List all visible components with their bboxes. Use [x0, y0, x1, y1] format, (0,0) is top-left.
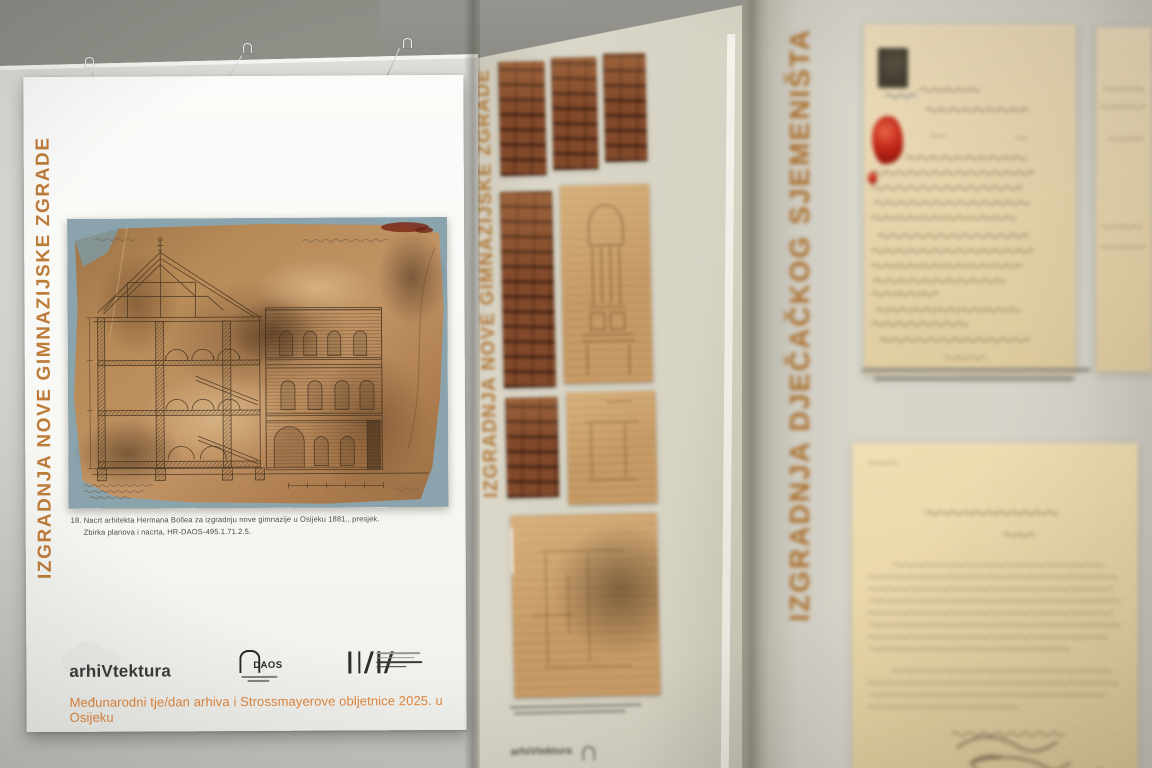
signature-flourish [936, 737, 1100, 768]
left-poster: IZGRADNJA NOVE GIMNAZIJSKE ZGRADE [23, 75, 466, 732]
drawing-thumbnail [566, 391, 657, 505]
archive-arch-icon [583, 746, 595, 760]
caption-line2: Zbirka planova i nacrta, HR-DAOS-495.1.7… [71, 525, 380, 538]
handwritten-letter-bottom [852, 443, 1138, 768]
drawing-thumbnail [603, 53, 647, 162]
wire-hook [243, 43, 252, 53]
drawing-thumbnail [551, 57, 598, 170]
daos-logo-subtext [247, 680, 269, 682]
drawing-thumbnail-large [511, 513, 661, 698]
middle-poster: IZGRADNJA NOVE GIMNAZIJSKE ZGRADE [478, 0, 742, 768]
panel-gap [742, 0, 770, 768]
faculty-logo-text [376, 652, 420, 654]
arhivtektura-logo: arhiVtektura [69, 661, 171, 682]
handwriting-lines [1096, 27, 1152, 372]
right-poster-content: IZGRADNJA DJEČAČKOG SJEMENIŠTA [770, 0, 1152, 768]
right-poster-vertical-title: IZGRADNJA DJEČAČKOG SJEMENIŠTA [784, 28, 816, 622]
handwriting-lines [864, 24, 1076, 374]
middle-footer-arhivtektura: arhiVtektura [511, 745, 573, 758]
faculty-logo-text [376, 661, 422, 663]
handwritten-letter-top [864, 24, 1076, 374]
daos-logo-text: DAOS [253, 660, 282, 671]
faculty-logo-bar [364, 651, 374, 673]
faculty-logo-text [376, 657, 414, 659]
drawing-thumbnail [500, 191, 556, 388]
left-poster-vertical-title: IZGRADNJA NOVE GIMNAZIJSKE ZGRADE [32, 101, 57, 579]
middle-caption-blurred [510, 703, 642, 709]
middle-caption-blurred [514, 710, 626, 715]
faculty-logo [348, 651, 389, 678]
right-caption-blurred [862, 368, 1090, 372]
caption-line1: 18. Nacrt arhitekta Hermana Bollea za iz… [71, 514, 380, 525]
right-poster: IZGRADNJA DJEČAČKOG SJEMENIŠTA [770, 0, 1152, 768]
exhibition-photo: IZGRADNJA NOVE GIMNAZIJSKE ZGRADE [0, 0, 1152, 768]
drawing-thumbnail-arch-window [560, 184, 653, 384]
right-caption-blurred [874, 377, 1074, 381]
handwriting-lines [852, 443, 1138, 768]
footer-tagline: Međunarodni tje/dan arhiva i Strossmayer… [70, 693, 467, 725]
daos-logo-subtext [241, 676, 277, 678]
wire-hook [403, 38, 412, 48]
middle-poster-content: IZGRADNJA NOVE GIMNAZIJSKE ZGRADE [463, 0, 743, 768]
drawing-thumbnail [505, 397, 559, 498]
architectural-drawing-presjek [67, 217, 449, 509]
faculty-logo-bar [358, 651, 361, 673]
handwritten-letter-partial [1096, 27, 1152, 372]
faculty-logo-text [376, 666, 406, 668]
board-edge-shadow [464, 0, 480, 768]
faculty-logo-bar [348, 651, 351, 673]
drawing-thumbnail [498, 61, 546, 176]
drawing-caption: 18. Nacrt arhitekta Hermana Bollea za iz… [71, 513, 380, 538]
